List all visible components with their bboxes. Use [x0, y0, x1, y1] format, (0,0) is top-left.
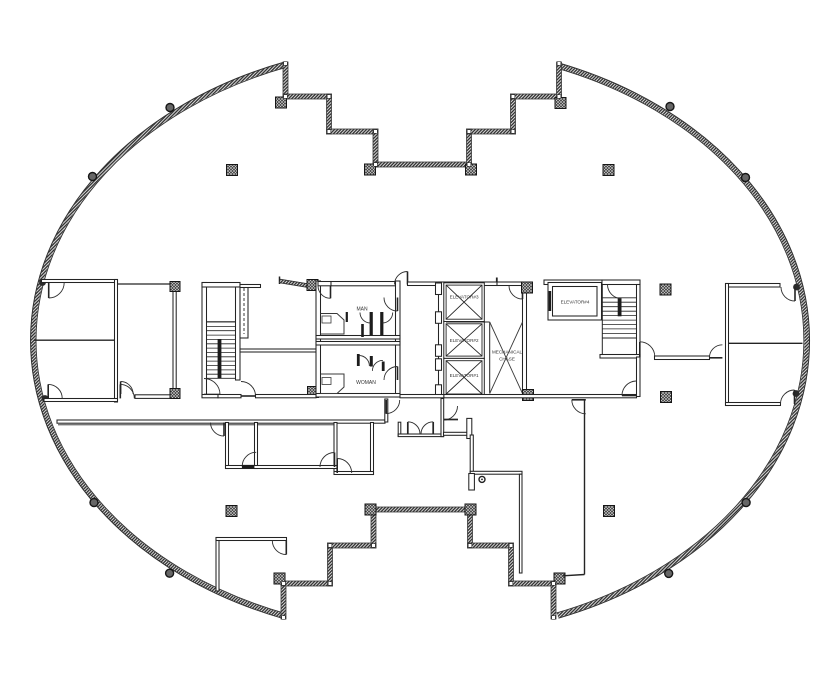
- svg-text:ELEVATOR#2: ELEVATOR#2: [450, 338, 479, 343]
- svg-text:ELEVATOR#1: ELEVATOR#1: [450, 373, 479, 378]
- svg-text:CHASE: CHASE: [499, 357, 515, 362]
- svg-text:ELEVATOR#4: ELEVATOR#4: [561, 300, 590, 305]
- svg-text:WOMAN: WOMAN: [356, 380, 376, 386]
- svg-text:MECHANICAL: MECHANICAL: [492, 350, 523, 355]
- svg-text:ELEVATOR#3: ELEVATOR#3: [450, 295, 479, 300]
- svg-text:MAN: MAN: [356, 307, 368, 313]
